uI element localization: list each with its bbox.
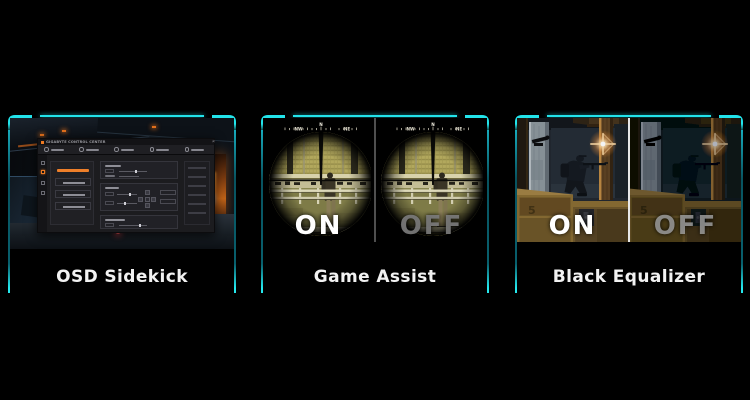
- gcc-nav-tab: [108, 145, 143, 154]
- osd-sidekick-image: GIGABYTE CONTROL CENTER – ×: [10, 118, 234, 249]
- gcc-nav-tab: [38, 145, 73, 154]
- frame-top-line: [40, 115, 204, 117]
- on-label: ON: [263, 211, 374, 241]
- settings-group: [100, 161, 178, 179]
- gcc-nav-tabs: [38, 145, 214, 155]
- tab-icon: [150, 147, 155, 152]
- dropdown: [160, 199, 176, 204]
- tab-icon: [114, 147, 119, 152]
- close-icon: ×: [212, 139, 216, 144]
- settings-group: [100, 183, 178, 211]
- off-label: OFF: [630, 211, 741, 241]
- scifi-corridor-scene: GIGABYTE CONTROL CENTER – ×: [10, 118, 234, 249]
- dpad-down: [145, 203, 150, 208]
- black-equalizer-image: 5: [517, 118, 741, 242]
- feature-showcase: GIGABYTE CONTROL CENTER – ×: [0, 0, 750, 400]
- gcc-nav-tab: [73, 145, 108, 154]
- game-assist-image: NW N NE: [263, 118, 487, 242]
- gcc-menu-column: [50, 161, 94, 225]
- gcc-nav-tab: [179, 145, 214, 154]
- tab-icon: [79, 147, 84, 152]
- off-label: OFF: [376, 211, 487, 241]
- on-label: ON: [517, 211, 628, 241]
- sidebar-icon: [41, 161, 45, 165]
- gcc-sidebar: [38, 155, 47, 232]
- settings-group: [100, 215, 178, 229]
- sidebar-icon-active: [41, 170, 45, 174]
- tab-icon: [185, 147, 190, 152]
- gcc-logo-icon: [41, 141, 44, 144]
- gcc-info-panel: [184, 161, 210, 225]
- sidebar-icon: [41, 181, 45, 185]
- frame-top-line: [293, 115, 457, 117]
- card-black-equalizer[interactable]: 5: [515, 115, 743, 293]
- dpad-center: [145, 197, 150, 202]
- frame-top-line: [547, 115, 711, 117]
- dpad-left: [138, 197, 143, 202]
- menu-button: [55, 202, 91, 210]
- gcc-window: GIGABYTE CONTROL CENTER – ×: [37, 138, 215, 233]
- tab-icon: [44, 147, 49, 152]
- feature-label: Game Assist: [261, 267, 489, 287]
- dpad-up: [145, 190, 150, 195]
- card-game-assist[interactable]: NW N NE: [261, 115, 489, 293]
- gcc-title: GIGABYTE CONTROL CENTER: [46, 140, 106, 144]
- gcc-nav-tab: [144, 145, 179, 154]
- sidebar-icon: [41, 191, 45, 195]
- dpad-right: [151, 197, 156, 202]
- menu-button: [55, 178, 91, 186]
- feature-label: OSD Sidekick: [8, 267, 236, 287]
- menu-item-active: [57, 169, 89, 172]
- feature-label: Black Equalizer: [515, 267, 743, 287]
- dropdown: [160, 190, 176, 195]
- menu-button: [55, 190, 91, 198]
- card-osd-sidekick[interactable]: GIGABYTE CONTROL CENTER – ×: [8, 115, 236, 293]
